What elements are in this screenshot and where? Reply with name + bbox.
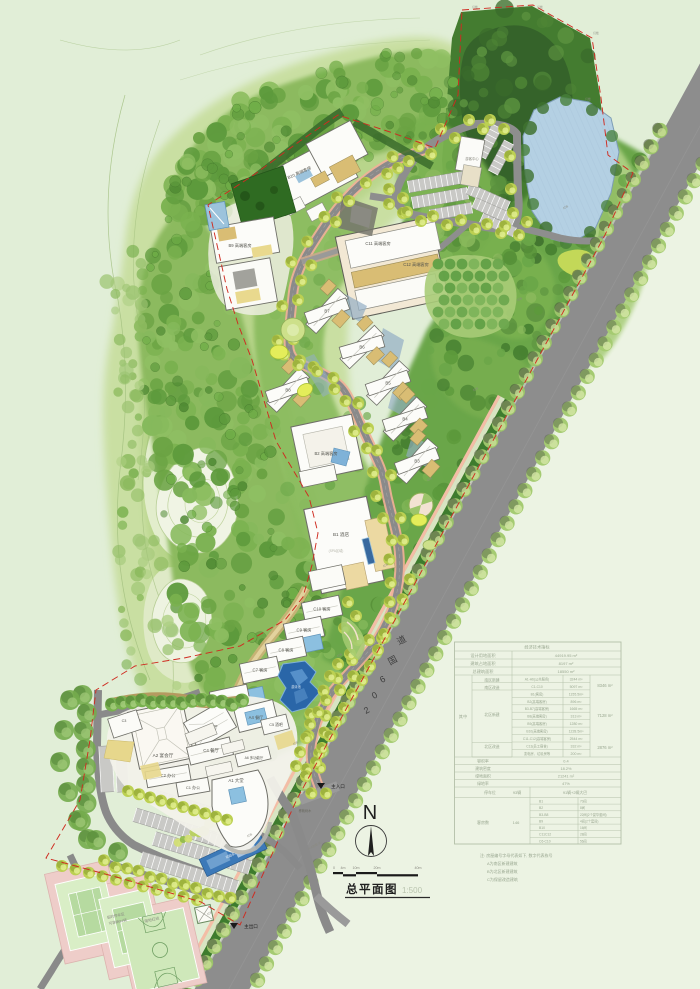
svg-text:B1(客房): B1(客房)	[531, 691, 544, 696]
svg-text:N: N	[363, 802, 377, 824]
svg-text:C7 客房: C7 客房	[253, 667, 268, 674]
svg-text:A1 大堂: A1 大堂	[228, 777, 244, 784]
svg-text:移栽树木: 移栽树木	[299, 808, 313, 813]
svg-text:南区新建: 南区新建	[484, 678, 499, 683]
svg-text:1665 m²: 1665 m²	[570, 707, 584, 711]
svg-text:B4: B4	[402, 417, 408, 422]
svg-text:游客中心: 游客中心	[465, 156, 479, 161]
svg-text:A2 宴会厅: A2 宴会厅	[153, 752, 174, 759]
svg-text:93辆: 93辆	[513, 790, 521, 795]
svg-text:10m: 10m	[353, 866, 360, 870]
svg-text:B2 高端客房: B2 高端客房	[314, 450, 337, 457]
svg-text:(SPA区域): (SPA区域)	[329, 548, 344, 553]
svg-text:C12 高端客房: C12 高端客房	[403, 261, 429, 268]
svg-text:建筑密度: 建筑密度	[475, 766, 491, 771]
svg-text:C10 客房: C10 客房	[313, 606, 330, 613]
svg-text:896 m²: 896 m²	[571, 700, 583, 704]
svg-text:18.2%: 18.2%	[560, 766, 572, 771]
svg-text:C13(员工宿舍): C13(员工宿舍)	[526, 743, 547, 748]
svg-text:B2(高端客房): B2(高端客房)	[527, 699, 546, 704]
svg-text:B8: B8	[285, 388, 291, 393]
svg-text:1155.5m²: 1155.5m²	[569, 692, 584, 696]
svg-text:B5: B5	[385, 381, 391, 386]
svg-text:2876 m²: 2876 m²	[597, 745, 613, 750]
svg-text:4间(2个套间): 4间(2个套间)	[580, 818, 598, 823]
svg-text:注: 房屋编号字母代表如下, 数字代表栋号: 注: 房屋编号字母代表如下, 数字代表栋号	[480, 852, 552, 858]
svg-text:1280 m²: 1280 m²	[570, 722, 584, 726]
svg-text:332 m²: 332 m²	[571, 744, 583, 748]
svg-text:C6-C10: C6-C10	[539, 839, 551, 843]
svg-text:游泳池: 游泳池	[291, 684, 301, 689]
svg-text:21241 m²: 21241 m²	[558, 774, 575, 779]
svg-text:红线: 红线	[472, 5, 478, 9]
svg-text:B1: B1	[539, 800, 543, 804]
svg-text:C9 客房: C9 客房	[297, 627, 312, 634]
svg-text:0.4: 0.4	[563, 759, 569, 764]
svg-text:设计用地面积: 设计用地面积	[470, 652, 495, 659]
svg-text:B9: B9	[539, 819, 543, 823]
svg-text:北区改造: 北区改造	[484, 744, 499, 749]
svg-text:A1-A6(公共服务): A1-A6(公共服务)	[525, 676, 550, 681]
svg-text:C1 办公: C1 办公	[186, 784, 200, 790]
svg-text:其中: 其中	[459, 713, 467, 720]
svg-text:北区新建: 北区新建	[484, 712, 499, 717]
svg-text:客房数: 客房数	[477, 819, 489, 825]
svg-text:200 m²: 200 m²	[571, 752, 583, 756]
svg-text:B9(高端客房): B9(高端客房)	[527, 721, 546, 726]
svg-text:47%: 47%	[562, 781, 570, 786]
svg-text:B10(高端客房): B10(高端客房)	[526, 729, 547, 734]
svg-text:南区改造: 南区改造	[484, 685, 499, 690]
svg-text:主出口: 主出口	[244, 923, 258, 930]
svg-text:A为南区新建建筑: A为南区新建建筑	[487, 860, 518, 866]
svg-text:C4 餐厅: C4 餐厅	[203, 747, 219, 754]
svg-text:C11C12: C11C12	[539, 833, 551, 837]
svg-text:1228.5m²: 1228.5m²	[569, 730, 585, 734]
svg-text:1:500: 1:500	[402, 886, 423, 895]
svg-text:A6 多功能厅: A6 多功能厅	[245, 755, 264, 760]
svg-text:主入口: 主入口	[331, 783, 345, 790]
svg-text:146: 146	[513, 820, 520, 825]
svg-text:B3-B7(高端客房): B3-B7(高端客房)	[525, 706, 550, 711]
svg-text:B3: B3	[414, 459, 420, 464]
svg-text:建筑占地面积: 建筑占地面积	[470, 660, 495, 667]
svg-text:8197 m²: 8197 m²	[559, 661, 574, 666]
svg-text:56间: 56间	[580, 838, 587, 843]
svg-text:红线: 红线	[537, 5, 543, 9]
svg-text:绿地面积: 绿地面积	[475, 774, 491, 779]
svg-text:C11 高端客房: C11 高端客房	[365, 240, 390, 247]
svg-text:2544 m²: 2544 m²	[570, 737, 584, 741]
svg-text:5097 m²: 5097 m²	[570, 685, 584, 689]
svg-text:18550 m²: 18550 m²	[558, 669, 576, 674]
svg-text:B3-B8: B3-B8	[539, 813, 549, 817]
svg-text:C3: C3	[122, 719, 127, 723]
svg-text:20m: 20m	[374, 866, 381, 870]
svg-text:8346 m²: 8346 m²	[597, 683, 613, 688]
svg-text:16间: 16间	[580, 825, 587, 830]
svg-text:B2: B2	[539, 806, 543, 810]
svg-text:C2 办公: C2 办公	[161, 772, 177, 779]
svg-text:0: 0	[333, 866, 335, 870]
svg-text:绿地率: 绿地率	[477, 781, 489, 786]
svg-text:B为北区新建建筑: B为北区新建建筑	[487, 868, 518, 874]
svg-text:B6: B6	[359, 345, 365, 350]
svg-text:7128 m²: 7128 m²	[597, 713, 613, 718]
svg-text:313 m²: 313 m²	[571, 715, 583, 719]
svg-text:4m: 4m	[341, 866, 346, 870]
svg-text:经济技术指标: 经济技术指标	[524, 644, 549, 651]
svg-text:70间: 70间	[580, 799, 587, 804]
svg-text:91辆+2辆大巴: 91辆+2辆大巴	[563, 790, 587, 795]
svg-text:8间: 8间	[580, 805, 585, 810]
svg-text:28间: 28间	[580, 832, 587, 837]
svg-text:红线: 红线	[593, 31, 599, 35]
svg-text:44919.95 m²: 44919.95 m²	[555, 653, 578, 658]
svg-text:C8 客房: C8 客房	[279, 647, 294, 654]
svg-text:22间(2个豪华套间): 22间(2个豪华套间)	[580, 812, 607, 817]
svg-text:容积率: 容积率	[477, 759, 489, 764]
svg-text:B10: B10	[539, 826, 545, 830]
svg-text:B8(高端客房): B8(高端客房)	[527, 714, 546, 719]
svg-text:C为保留改造建筑: C为保留改造建筑	[487, 876, 518, 882]
svg-text:红线: 红线	[585, 97, 591, 101]
svg-text:变电房、垃圾房等: 变电房、垃圾房等	[524, 751, 551, 756]
svg-text:3244 m²: 3244 m²	[570, 677, 584, 681]
svg-text:40m: 40m	[415, 866, 422, 870]
svg-text:B7: B7	[324, 309, 330, 314]
svg-text:B1 酒店: B1 酒店	[333, 531, 349, 538]
svg-text:总建筑面积: 总建筑面积	[473, 668, 494, 675]
svg-text:C5 酒吧: C5 酒吧	[269, 722, 283, 727]
svg-text:B9 高端客房: B9 高端客房	[228, 242, 251, 249]
svg-text:C11-C12(高端客房): C11-C12(高端客房)	[523, 736, 551, 741]
svg-text:C1-C10: C1-C10	[531, 685, 543, 689]
svg-text:总平面图: 总平面图	[346, 882, 398, 896]
svg-text:停车位: 停车位	[484, 790, 496, 795]
